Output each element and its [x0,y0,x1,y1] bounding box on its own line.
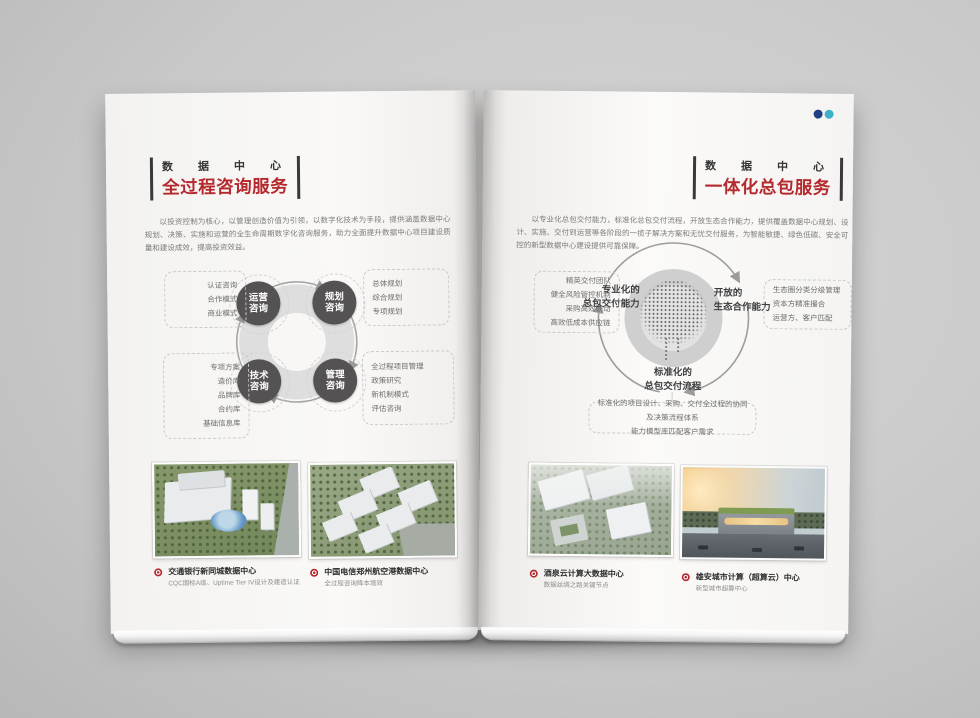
brochure-spread: 数据中心 全过程咨询服务 以投资控制为核心，以管理创造价值为引领，以数字化技术为… [108,92,854,632]
haze-overlay [530,465,673,507]
box-item: 健全风险管控机制 [543,288,611,303]
case-caption: 酒泉云计算大数据中心 数据丝绸之路关键节点 [530,569,690,592]
case-caption: 交通银行新同城数据中心 CQC国标A级、Uptime Tier IV设计及建造认… [154,566,314,589]
box-item: 能力模型库匹配客户需求 [597,424,747,440]
brochure-mockup-scene: 数据中心 全过程咨询服务 以投资控制为核心，以管理创造价值为引领，以数字化技术为… [0,0,980,718]
box-item: 总体规划 [372,276,440,291]
case-title: 交通银行新同城数据中心 [168,566,300,578]
tower-building [260,503,273,529]
header-rule-right [297,156,300,199]
photo-telecom-datacenter [308,461,457,559]
header-rule-left [150,157,153,200]
box-item: 运营方、客户匹配 [772,311,842,326]
left-section-header: 数据中心 全过程咨询服务 [150,156,300,201]
red-bullet-icon [530,570,538,578]
box-item: 标准化的项目设计、采购、交付全过程的协同及决策流程体系 [597,396,747,426]
road [252,463,301,559]
logo-dark-circle-icon [814,110,823,119]
case-desc: 全过程咨询降本增效 [324,579,428,589]
right-eyebrow: 数据中心 [705,157,856,175]
box-item: 合约库 [172,403,240,418]
box-item: 新机制模式 [371,387,445,402]
case-title: 雄安城市计算（超算云）中心 [696,572,800,583]
red-bullet-icon [682,573,690,581]
photo-bocom-datacenter [152,461,301,559]
box-technical-items: 专项方案 造价库 品牌库 合约库 基础信息库 [163,352,250,439]
case-desc: 新型城市超算中心 [696,585,800,595]
spine-shadow [451,90,481,630]
box-item: 政策研究 [371,373,445,388]
left-intro-paragraph: 以投资控制为核心，以管理创造价值为引领，以数字化技术为手段，提供涵盖数据中心规划… [144,212,450,254]
right-intro-paragraph: 以专业化总包交付能力，标准化总包交付流程，开放生态合作能力，提供覆盖数据中心规划… [516,212,848,254]
case-caption: 中国电信郑州航空港数据中心 全过程咨询降本增效 [310,566,470,589]
globe-dots-texture [639,280,708,349]
box-management-items: 全过程项目管理 政策研究 新机制模式 评估咨询 [362,350,455,425]
box-item: 认证咨询 [173,278,237,293]
brand-logo [814,110,834,119]
case-title: 中国电信郑州航空港数据中心 [324,567,428,578]
box-item: 造价库 [172,375,240,390]
car [752,548,762,552]
header-rule-right [840,158,843,201]
globe-stem [676,337,681,354]
box-item: 生态圈分类分级管理 [773,283,843,298]
case-desc: 数据丝绸之路关键节点 [544,581,624,591]
green-roof [718,508,794,515]
logo-teal-circle-icon [825,110,834,119]
node-management-consulting: 管理咨询 [313,358,357,402]
photo-xiongan-supercomputing-center [680,465,827,561]
box-item: 合作模式 [173,292,237,307]
box-item: 评估咨询 [371,401,445,416]
box-item: 商业模式 [173,306,237,321]
spine-shadow [478,90,508,630]
box-item: 高效低成本供应链 [542,316,610,331]
car [794,546,804,550]
case-title: 酒泉云计算大数据中心 [544,569,624,580]
box-item: 专项方案 [172,361,240,376]
box-delivery-capability-items: 精英交付团队 健全风险管控机制 采购高效联动 高效低成本供应链 [533,271,620,334]
box-standardized-process-items: 标准化的项目设计、采购、交付全过程的协同及决策流程体系 能力模型库匹配客户需求 [588,401,756,435]
box-item: 品牌库 [172,389,240,404]
header-rule-left [693,156,696,199]
case-caption: 雄安城市计算（超算云）中心 新型城市超算中心 [682,572,842,595]
node-planning-consulting: 规划咨询 [312,280,356,324]
car [698,545,708,549]
right-page: 数据中心 一体化总包服务 以专业化总包交付能力，标准化总包交付流程，开放生态合作… [478,90,854,634]
case-desc: CQC国标A级、Uptime Tier IV设计及建造认证 [168,578,300,588]
box-planning-items: 总体规划 综合规划 专项规划 [363,268,450,326]
left-page: 数据中心 全过程咨询服务 以投资控制为核心，以管理创造价值为引领，以数字化技术为… [105,90,481,634]
box-item: 采购高效联动 [542,302,610,317]
left-eyebrow: 数据中心 [162,157,313,175]
globe-stem [664,337,669,361]
box-item: 全过程项目管理 [371,359,445,374]
red-bullet-icon [310,569,318,577]
right-page-title: 一体化总包服务 [705,173,831,199]
box-item: 资本方精准撮合 [773,297,843,312]
box-ecosystem-items: 生态圈分类分级管理 资本方精准撮合 运营方、客户匹配 [763,279,852,330]
box-item: 基础信息库 [173,417,241,432]
box-item: 综合规划 [372,290,440,305]
left-page-title: 全过程咨询服务 [162,173,288,199]
red-bullet-icon [154,568,162,576]
box-certification-items: 认证咨询 合作模式 商业模式 [164,270,247,328]
right-section-header: 数据中心 一体化总包服务 [693,156,843,201]
label-standardized-process: 标准化的 总包交付流程 [613,365,733,394]
box-item: 专项规划 [372,304,440,319]
photo-jiuquan-datacenter [528,463,674,558]
box-item: 精英交付团队 [543,274,611,289]
glowing-facade [724,518,788,526]
